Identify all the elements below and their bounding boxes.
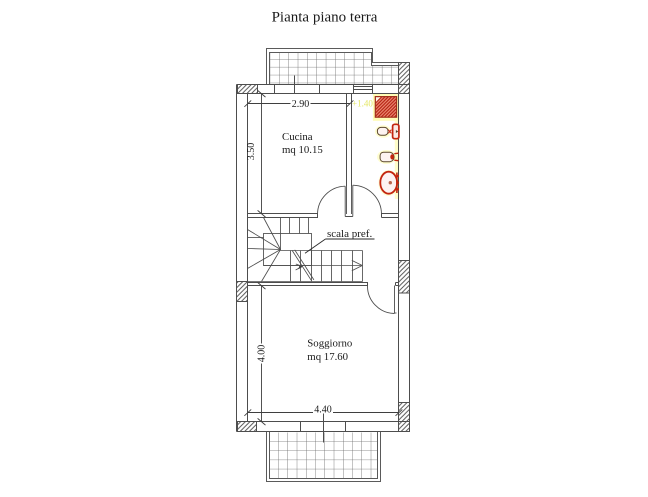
svg-text:Pianta piano terra: Pianta piano terra xyxy=(272,10,378,26)
svg-text:4.00: 4.00 xyxy=(257,345,268,363)
svg-text:Soggiorno: Soggiorno xyxy=(307,338,352,350)
svg-text:Cucina: Cucina xyxy=(282,131,313,143)
svg-text:scala pref.: scala pref. xyxy=(327,228,372,240)
svg-text:2.90: 2.90 xyxy=(292,99,310,110)
svg-text:4.40: 4.40 xyxy=(314,405,332,416)
svg-text:+1.40: +1.40 xyxy=(352,99,373,109)
svg-text:mq 17.60: mq 17.60 xyxy=(307,351,348,363)
svg-text:mq 10.15: mq 10.15 xyxy=(282,144,323,156)
svg-text:3.50: 3.50 xyxy=(246,143,257,161)
